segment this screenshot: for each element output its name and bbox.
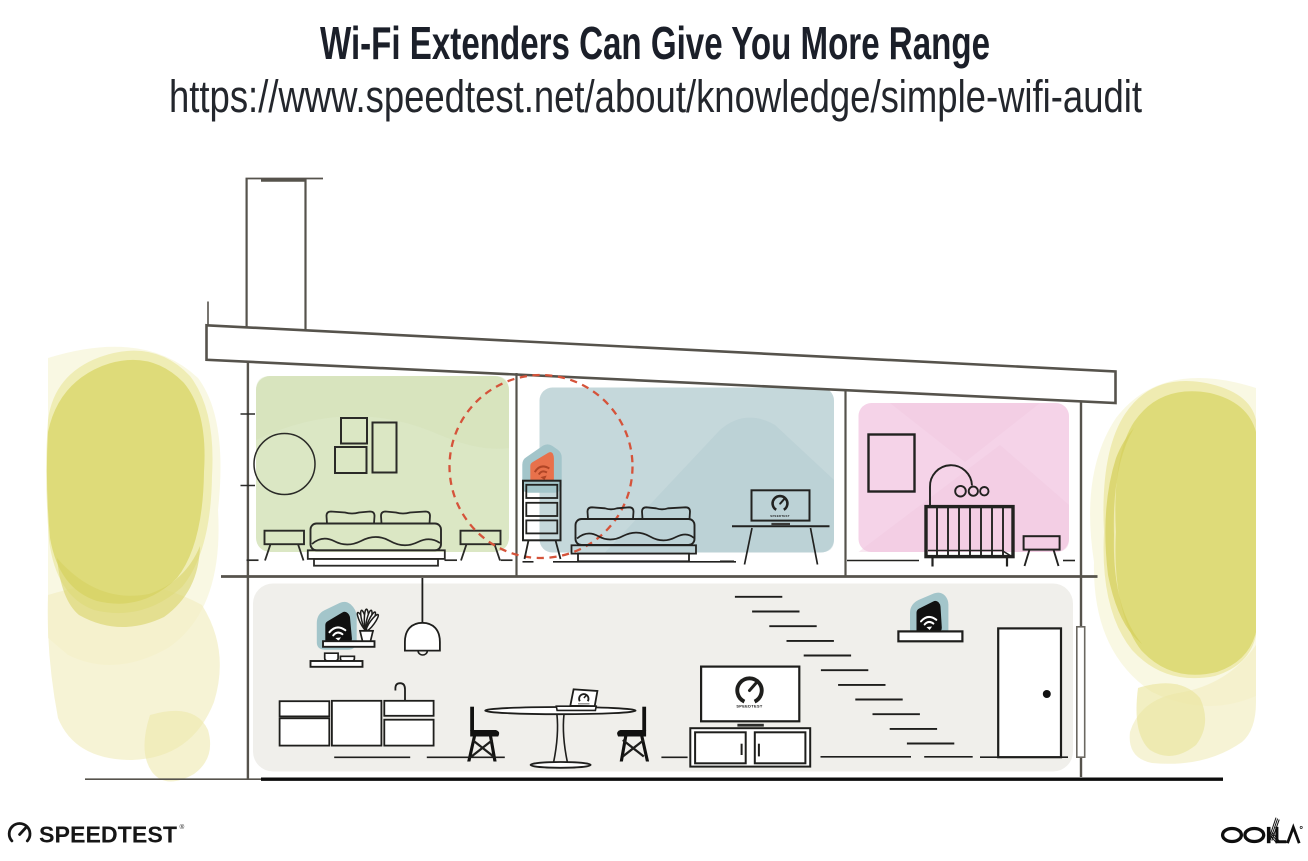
svg-text:SPEEDTEST: SPEEDTEST (39, 821, 178, 847)
svg-text:SPEEDTEST: SPEEDTEST (736, 704, 763, 709)
svg-text:®: ® (180, 823, 185, 831)
svg-text:https://www.speedtest.net/abou: https://www.speedtest.net/about/knowledg… (169, 71, 1142, 122)
svg-text:SPEEDTEST: SPEEDTEST (770, 514, 789, 518)
svg-text:Wi-Fi Extenders Can Give You M: Wi-Fi Extenders Can Give You More Range (320, 17, 990, 69)
